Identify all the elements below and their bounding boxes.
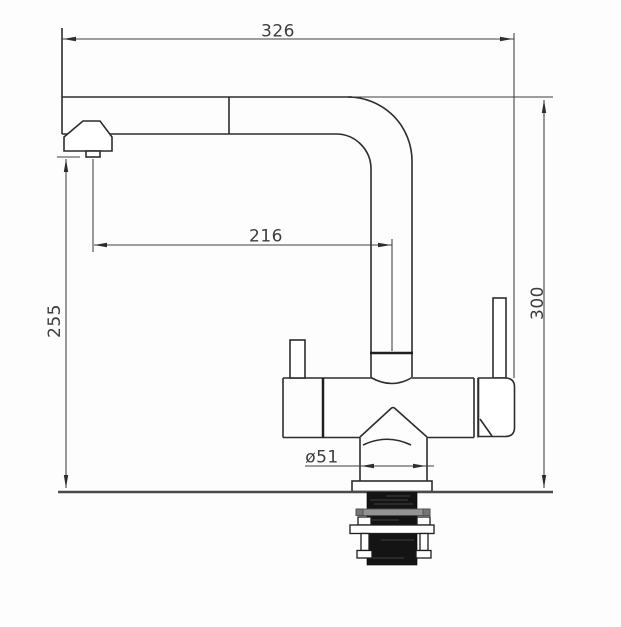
- outlet-height-label: 255: [45, 304, 65, 338]
- right-bolt-shaft: [420, 534, 428, 551]
- spout-bottom-inner-bend: [62, 134, 371, 377]
- left-handle: [290, 340, 305, 378]
- left-bolt-foot: [357, 551, 372, 559]
- technical-drawing-canvas: 326 216 255 300 ø51: [0, 0, 621, 627]
- neck-dome: [363, 439, 411, 445]
- aerator: [86, 151, 100, 157]
- faucet-body: [283, 353, 478, 438]
- mounting-bracket: [350, 525, 434, 534]
- height-arrow-top: [542, 100, 546, 113]
- width-arrow-right: [500, 37, 513, 41]
- spout-outer-bend: [348, 97, 412, 377]
- overall-width-label: 326: [261, 22, 295, 42]
- dimension-spout-reach: 216: [93, 159, 392, 351]
- reach-arrow-left: [94, 243, 107, 247]
- dimension-outlet-height: 255: [45, 157, 80, 488]
- washer-left-end: [356, 509, 363, 516]
- left-bolt-shaft: [361, 534, 369, 551]
- tube-base-dome: [371, 378, 412, 384]
- dimension-overall-width: 326: [62, 22, 514, 42]
- right-bolt-foot: [416, 551, 431, 559]
- right-bolt-head: [417, 517, 430, 525]
- right-handle-body: [479, 378, 515, 437]
- outlet-height-arrow-bottom: [64, 475, 68, 488]
- washer-right-end: [423, 509, 430, 516]
- spout-reach-label: 216: [249, 227, 283, 247]
- dimension-base-diameter: ø51: [305, 448, 434, 469]
- diameter-arrow-left: [361, 464, 374, 468]
- spout-head: [64, 121, 112, 151]
- faucet-spout: [62, 28, 553, 377]
- base-diameter-label: ø51: [305, 448, 339, 468]
- left-handle-lever: [290, 340, 305, 378]
- rubber-washer: [356, 509, 430, 516]
- overall-height-label: 300: [528, 286, 548, 320]
- base-neck: [360, 438, 427, 482]
- faucet-technical-drawing: 326 216 255 300 ø51: [0, 0, 621, 627]
- inlet-cone: [360, 408, 427, 437]
- faucet-base: [352, 438, 432, 492]
- diameter-arrow-right: [413, 464, 426, 468]
- left-bolt-head: [358, 517, 371, 525]
- height-arrow-bottom: [542, 475, 546, 488]
- right-handle: [479, 33, 515, 437]
- reach-arrow-right: [378, 243, 391, 247]
- right-handle-lever: [493, 298, 506, 378]
- base-flange: [352, 481, 432, 492]
- outlet-height-arrow-top: [64, 159, 68, 172]
- mounting-hardware: [350, 493, 434, 566]
- width-arrow-left: [63, 37, 76, 41]
- dimension-overall-height: 300: [528, 100, 548, 488]
